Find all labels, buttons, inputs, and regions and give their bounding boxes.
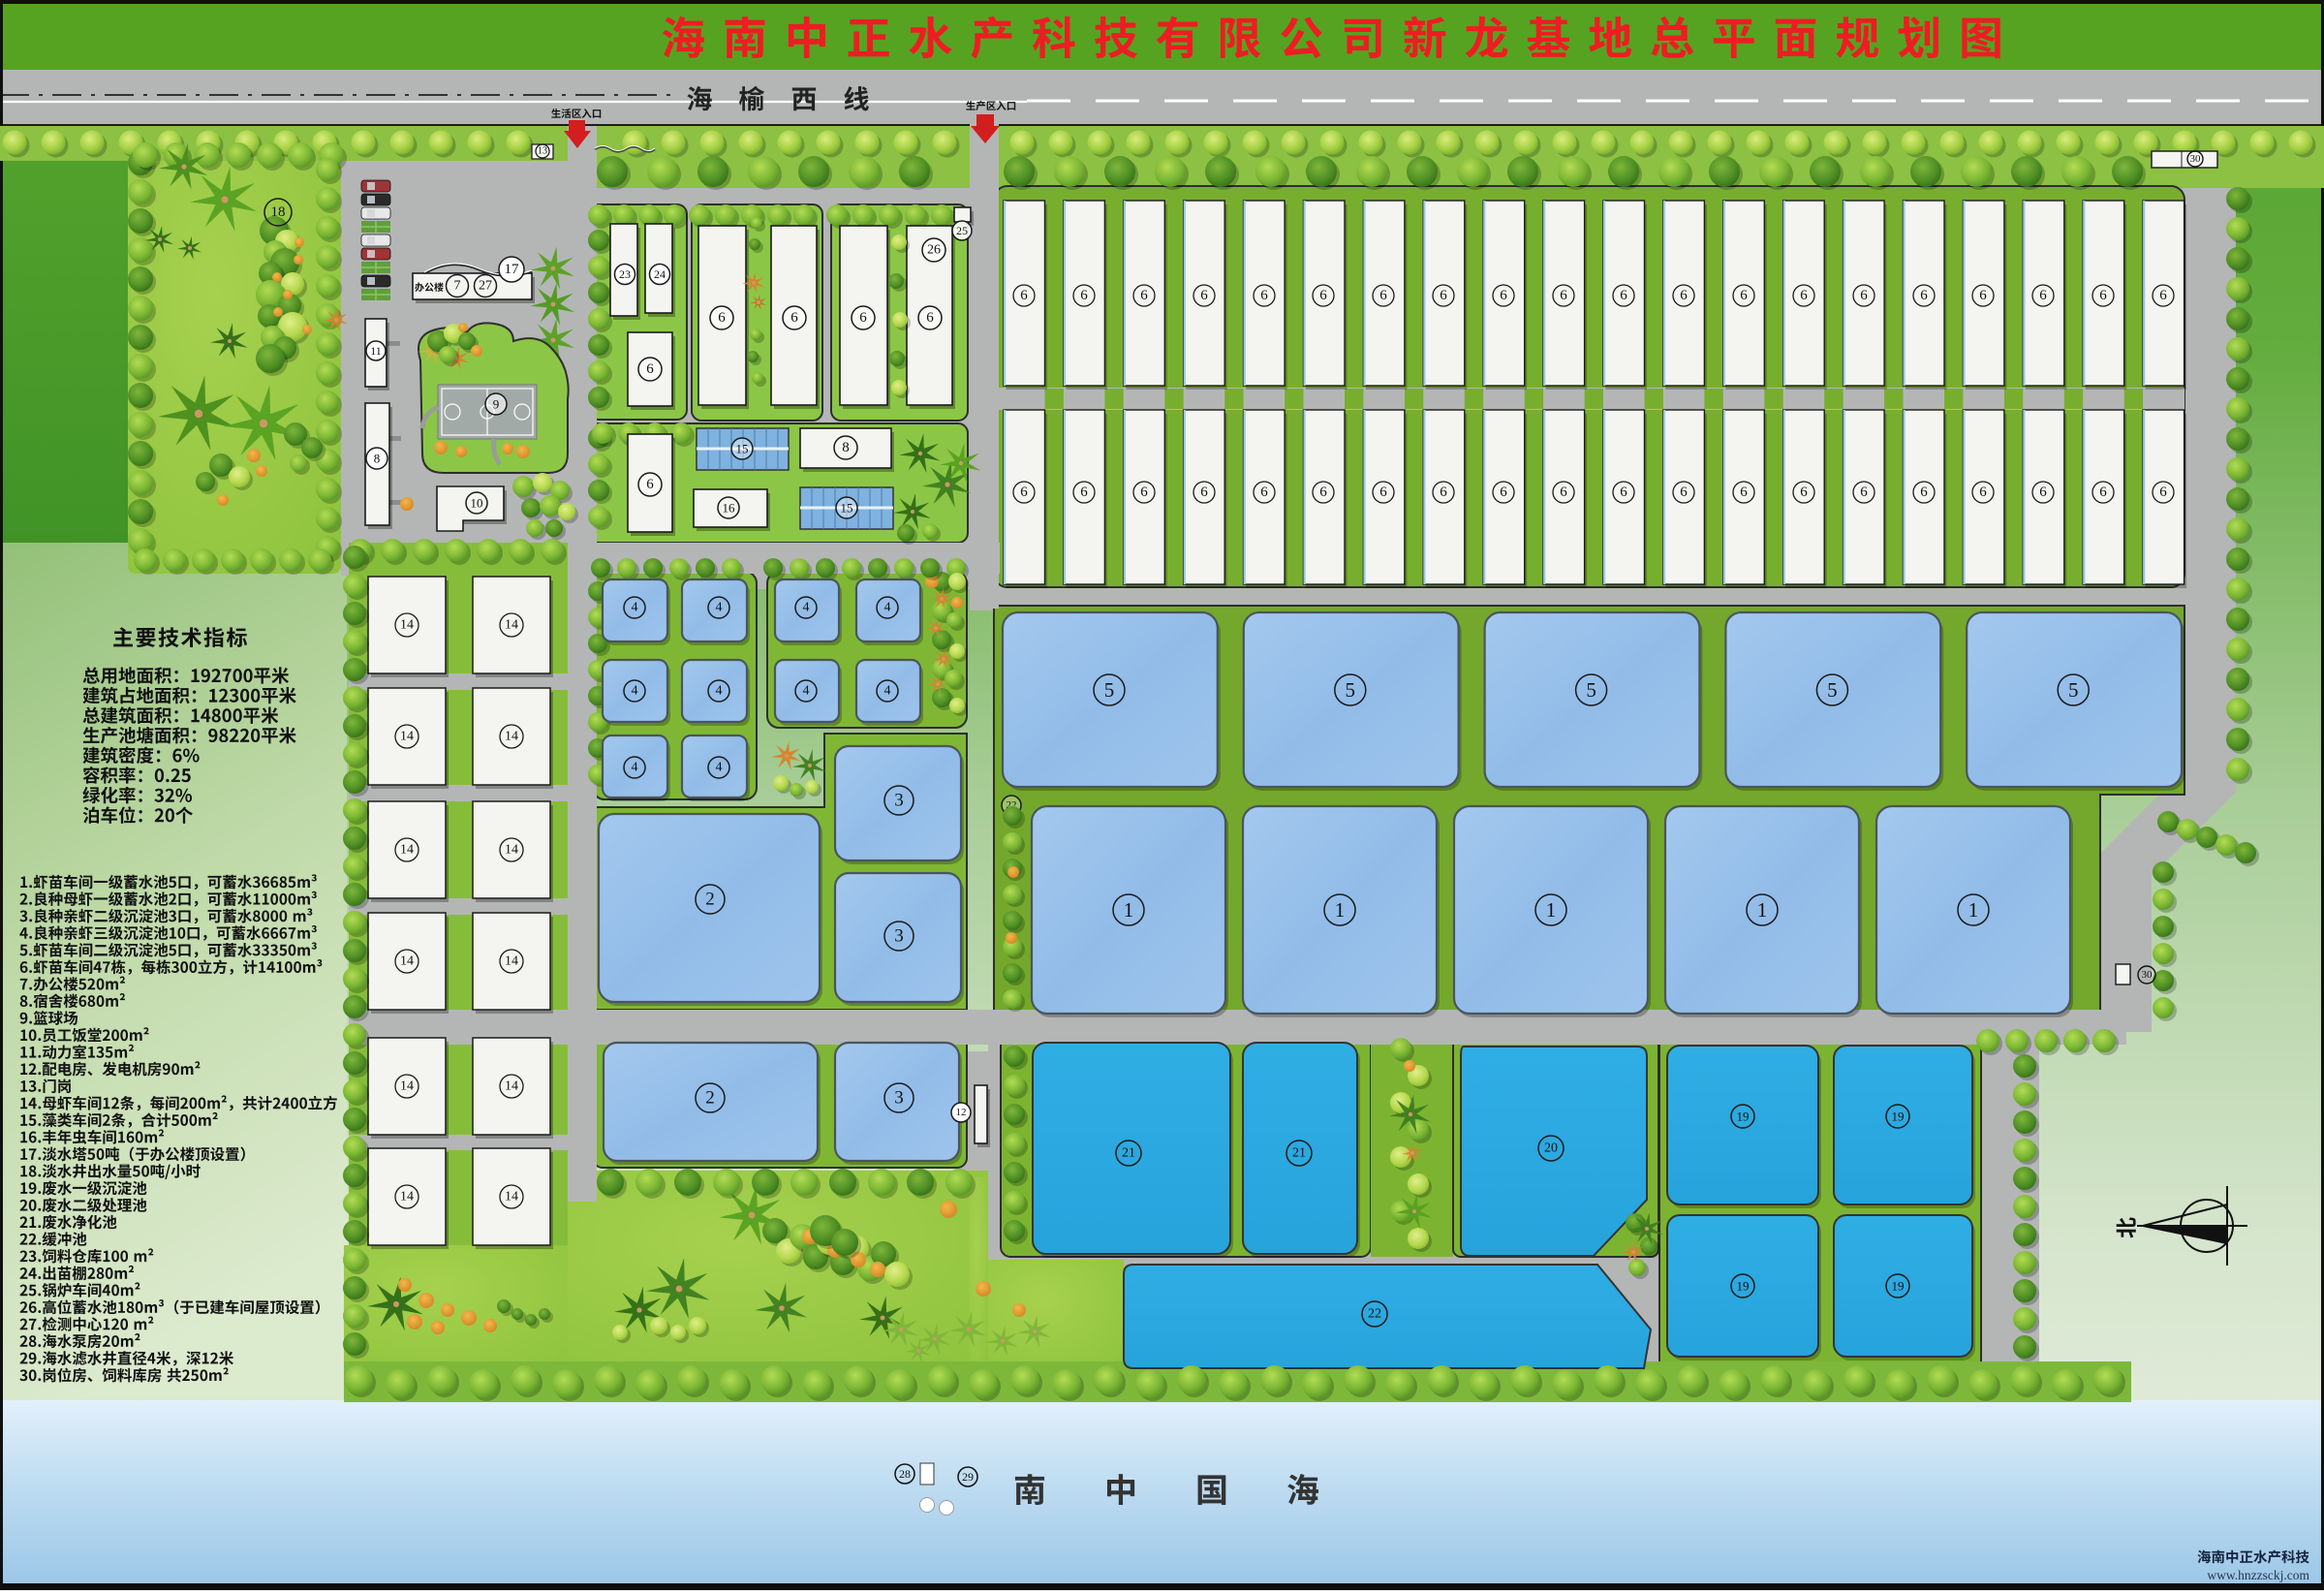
svg-text:6: 6	[1200, 288, 1208, 303]
svg-text:14: 14	[400, 1079, 414, 1094]
svg-text:14: 14	[505, 954, 518, 969]
svg-text:6: 6	[1920, 288, 1928, 303]
svg-text:6: 6	[1800, 485, 1808, 500]
svg-text:21: 21	[1122, 1146, 1135, 1161]
svg-text:30: 30	[2190, 153, 2202, 165]
svg-text:24: 24	[654, 267, 666, 281]
svg-text:6: 6	[1379, 485, 1387, 500]
svg-text:13: 13	[538, 146, 547, 157]
svg-text:20: 20	[1544, 1142, 1558, 1156]
svg-text:4: 4	[716, 761, 723, 775]
svg-text:23: 23	[619, 267, 631, 281]
svg-text:6: 6	[2039, 485, 2047, 500]
svg-text:19: 19	[1737, 1110, 1750, 1124]
svg-text:6: 6	[1080, 485, 1088, 500]
svg-text:17: 17	[505, 262, 520, 277]
svg-text:4: 4	[884, 684, 891, 699]
svg-text:8: 8	[842, 440, 850, 455]
svg-text:9: 9	[493, 397, 500, 412]
svg-text:14: 14	[505, 730, 518, 744]
svg-text:6: 6	[790, 310, 798, 326]
svg-text:4: 4	[803, 684, 810, 699]
svg-text:1: 1	[1546, 898, 1557, 922]
svg-text:6: 6	[1020, 485, 1028, 500]
svg-text:6: 6	[1319, 288, 1327, 303]
svg-text:6: 6	[926, 310, 934, 326]
svg-text:21: 21	[1292, 1146, 1306, 1161]
svg-text:14: 14	[400, 1190, 414, 1204]
svg-text:www.hnzzsckj.com: www.hnzzsckj.com	[2207, 1568, 2309, 1582]
svg-text:6: 6	[1379, 288, 1387, 303]
svg-text:6: 6	[1500, 288, 1507, 303]
svg-text:18: 18	[271, 204, 286, 220]
svg-text:6: 6	[859, 310, 867, 326]
svg-text:6: 6	[1620, 485, 1627, 500]
svg-text:5: 5	[2068, 678, 2079, 702]
svg-text:6: 6	[1860, 485, 1868, 500]
svg-text:10: 10	[471, 496, 483, 511]
svg-text:6: 6	[1680, 485, 1688, 500]
svg-text:8: 8	[374, 452, 381, 466]
svg-text:6: 6	[718, 310, 726, 326]
svg-text:4: 4	[716, 601, 723, 615]
svg-text:6: 6	[1319, 485, 1327, 500]
svg-text:4: 4	[803, 601, 810, 615]
svg-text:14: 14	[505, 843, 518, 858]
svg-text:6: 6	[1140, 485, 1148, 500]
svg-text:25: 25	[956, 224, 968, 237]
svg-text:1: 1	[1757, 898, 1768, 922]
svg-text:6: 6	[1680, 288, 1688, 303]
svg-text:6: 6	[1260, 288, 1268, 303]
svg-text:14: 14	[400, 618, 414, 633]
svg-text:28: 28	[899, 1467, 911, 1481]
svg-text:6: 6	[1740, 485, 1748, 500]
svg-text:6: 6	[1080, 288, 1088, 303]
svg-text:4: 4	[884, 601, 891, 615]
svg-text:6: 6	[1020, 288, 1028, 303]
svg-text:6: 6	[1560, 288, 1567, 303]
svg-text:6: 6	[1620, 288, 1627, 303]
svg-text:1: 1	[1335, 898, 1346, 922]
svg-text:14: 14	[400, 843, 414, 858]
svg-text:6: 6	[1500, 485, 1507, 500]
svg-text:2: 2	[705, 890, 715, 910]
svg-text:19: 19	[1892, 1110, 1905, 1124]
svg-text:6: 6	[646, 361, 654, 377]
svg-text:6: 6	[1979, 288, 1987, 303]
svg-text:5: 5	[1104, 678, 1115, 702]
svg-text:6: 6	[1440, 485, 1447, 500]
svg-text:6: 6	[2159, 288, 2167, 303]
svg-text:6: 6	[1560, 485, 1567, 500]
svg-text:16: 16	[723, 501, 736, 516]
svg-text:15: 15	[736, 442, 749, 456]
svg-text:6: 6	[2099, 288, 2107, 303]
svg-text:1: 1	[1124, 898, 1134, 922]
svg-text:6: 6	[2099, 485, 2107, 500]
svg-text:6: 6	[1800, 288, 1808, 303]
svg-text:6: 6	[1860, 288, 1868, 303]
svg-text:5: 5	[1827, 678, 1838, 702]
svg-text:15: 15	[841, 501, 853, 516]
svg-text:1: 1	[1968, 898, 1979, 922]
svg-text:6: 6	[1979, 485, 1987, 500]
svg-text:6: 6	[646, 477, 654, 492]
svg-text:7: 7	[454, 279, 461, 294]
svg-text:14: 14	[400, 954, 414, 969]
svg-text:11: 11	[370, 344, 382, 358]
svg-text:6: 6	[1260, 485, 1268, 500]
svg-text:6: 6	[1200, 485, 1208, 500]
svg-text:27: 27	[479, 279, 492, 294]
svg-text:14: 14	[400, 730, 414, 744]
svg-text:4: 4	[632, 684, 638, 699]
svg-text:30: 30	[2142, 969, 2154, 981]
svg-text:6: 6	[2039, 288, 2047, 303]
svg-text:3: 3	[894, 791, 904, 811]
svg-text:3: 3	[894, 926, 904, 947]
svg-text:6: 6	[2159, 485, 2167, 500]
svg-text:4: 4	[632, 601, 638, 615]
svg-text:19: 19	[1737, 1279, 1750, 1294]
svg-text:5: 5	[1586, 678, 1596, 702]
svg-text:5: 5	[1346, 678, 1356, 702]
svg-text:6: 6	[1740, 288, 1748, 303]
svg-text:4: 4	[632, 761, 638, 775]
svg-text:19: 19	[1892, 1279, 1905, 1294]
svg-text:14: 14	[505, 618, 518, 633]
svg-text:12: 12	[956, 1107, 967, 1118]
svg-text:14: 14	[505, 1079, 518, 1094]
svg-text:6: 6	[1440, 288, 1447, 303]
svg-text:29: 29	[962, 1470, 974, 1484]
svg-text:26: 26	[927, 243, 941, 258]
svg-text:14: 14	[505, 1190, 518, 1204]
svg-text:6: 6	[1920, 485, 1928, 500]
svg-text:2: 2	[705, 1088, 715, 1109]
svg-text:3: 3	[894, 1088, 904, 1109]
svg-text:6: 6	[1140, 288, 1148, 303]
svg-text:4: 4	[716, 684, 723, 699]
svg-text:22: 22	[1368, 1307, 1381, 1322]
